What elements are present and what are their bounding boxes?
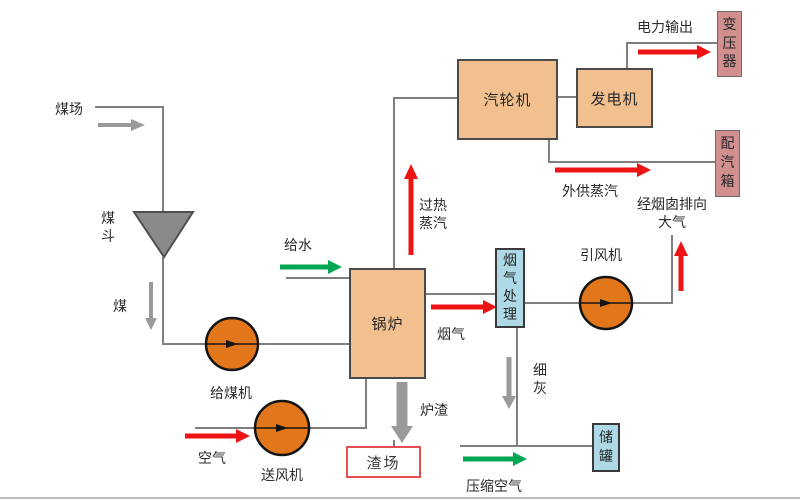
- fine-ash-arrow: [502, 357, 516, 409]
- external-steam-label: 外供蒸汽: [562, 183, 618, 201]
- compressed-air-arrow: [463, 452, 527, 466]
- fine-ash-label: 细灰: [533, 362, 549, 398]
- transformer-label: 变压器: [722, 16, 737, 73]
- external-steam-arrow: [555, 163, 651, 177]
- slag-label: 炉渣: [420, 402, 448, 420]
- line-hopper-to-boiler: [163, 257, 349, 344]
- coal-yard-flow-arrow: [98, 119, 145, 131]
- line-boiler-to-turbine: [394, 98, 457, 268]
- gray-arrows: [98, 119, 516, 443]
- storage-tank-box: 储罐: [592, 423, 620, 472]
- steam-distribution-box: 配汽箱: [715, 130, 740, 197]
- induced-draft-fan-label: 引风机: [580, 247, 622, 265]
- coal-flow-arrow: [145, 282, 157, 330]
- diagram-canvas: [0, 0, 800, 500]
- superheated-steam-label: 过热蒸汽: [419, 197, 451, 233]
- power-output-arrow: [638, 45, 711, 59]
- feed-water-label: 给水: [284, 237, 312, 255]
- flue-gas-treatment-label: 烟气处理: [503, 252, 518, 325]
- slag-yard-box: 渣场: [346, 446, 421, 478]
- coal-hopper-funnel: [134, 212, 193, 257]
- chimney-to-atmosphere-label: 经烟囱排向大气: [633, 196, 711, 232]
- coal-feeder-label: 给煤机: [210, 385, 252, 403]
- flue-gas-arrow: [431, 300, 497, 314]
- boiler-box: 锅炉: [349, 268, 426, 379]
- generator-box: 发电机: [576, 68, 653, 128]
- coal-label: 煤: [113, 298, 127, 316]
- line-coalyard-to-hopper: [95, 107, 163, 212]
- slag-yard-label: 渣场: [366, 452, 400, 473]
- steam-distribution-label: 配汽箱: [720, 135, 735, 192]
- coal-yard-label: 煤场: [55, 101, 83, 119]
- boiler-label: 锅炉: [371, 313, 403, 334]
- transformer-box: 变压器: [717, 11, 742, 77]
- flue-gas-label: 烟气: [437, 326, 465, 344]
- power-output-label: 电力输出: [637, 19, 693, 37]
- flue-gas-treatment-box: 烟气处理: [495, 248, 525, 328]
- slag-flow-arrow: [391, 382, 413, 443]
- superheated-steam-arrow: [404, 164, 418, 255]
- feed-water-arrow: [280, 260, 342, 274]
- line-turbine-to-steam-box: [549, 140, 715, 162]
- generator-label: 发电机: [590, 88, 638, 109]
- process-flow-diagram: 汽轮机 发电机 锅炉 变压器 配汽箱 烟气处理 储罐 渣场 煤场 煤斗 煤 给煤…: [0, 0, 800, 500]
- air-arrow: [185, 429, 250, 443]
- air-label: 空气: [198, 450, 226, 468]
- bottom-edge-line: [0, 497, 800, 499]
- storage-tank-label: 储罐: [599, 429, 614, 465]
- turbine-box: 汽轮机: [457, 59, 558, 140]
- coal-hopper-label: 煤斗: [101, 210, 117, 246]
- forced-draft-fan-label: 送风机: [261, 467, 303, 485]
- chimney-arrow: [674, 241, 688, 291]
- turbine-label: 汽轮机: [483, 89, 531, 110]
- compressed-air-label: 压缩空气: [466, 478, 522, 496]
